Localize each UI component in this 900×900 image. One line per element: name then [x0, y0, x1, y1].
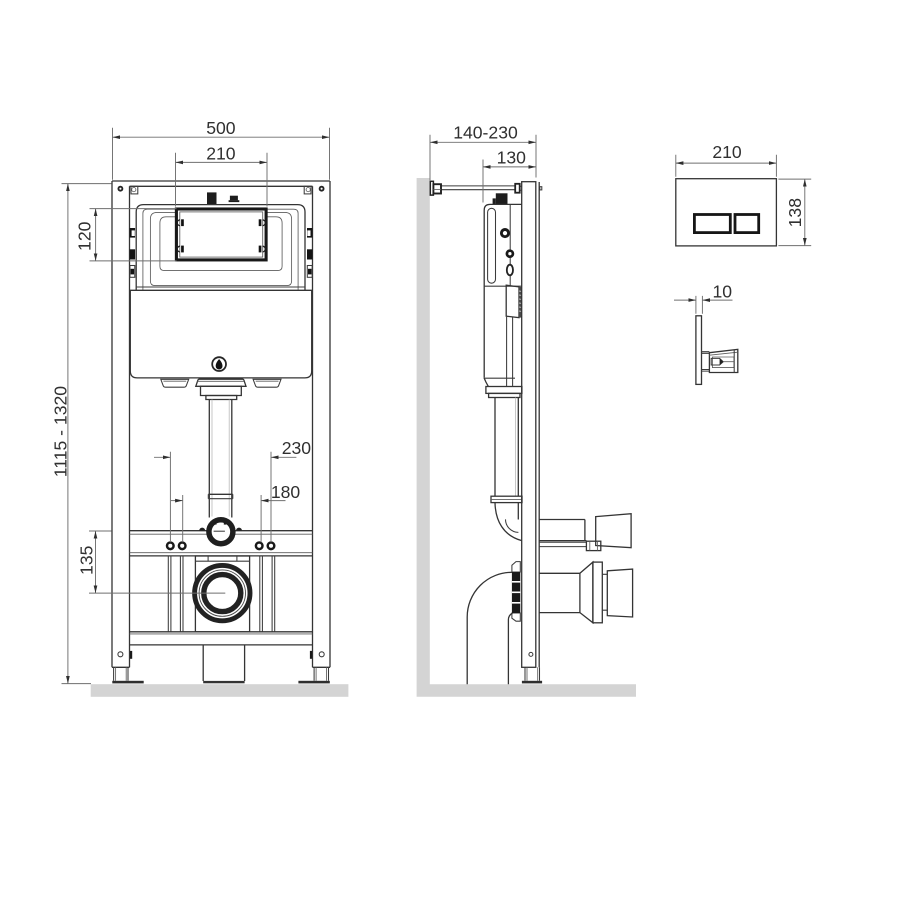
svg-text:140-230: 140-230: [453, 122, 518, 142]
svg-text:210: 210: [206, 144, 236, 164]
svg-text:230: 230: [282, 438, 312, 458]
svg-text:1115 - 1320: 1115 - 1320: [51, 386, 71, 478]
svg-text:130: 130: [497, 147, 527, 167]
svg-text:135: 135: [77, 545, 97, 575]
svg-text:10: 10: [713, 281, 733, 301]
svg-text:210: 210: [712, 142, 742, 162]
svg-text:180: 180: [271, 482, 301, 502]
svg-text:120: 120: [75, 221, 95, 251]
svg-text:138: 138: [785, 198, 805, 228]
svg-text:500: 500: [206, 118, 236, 138]
